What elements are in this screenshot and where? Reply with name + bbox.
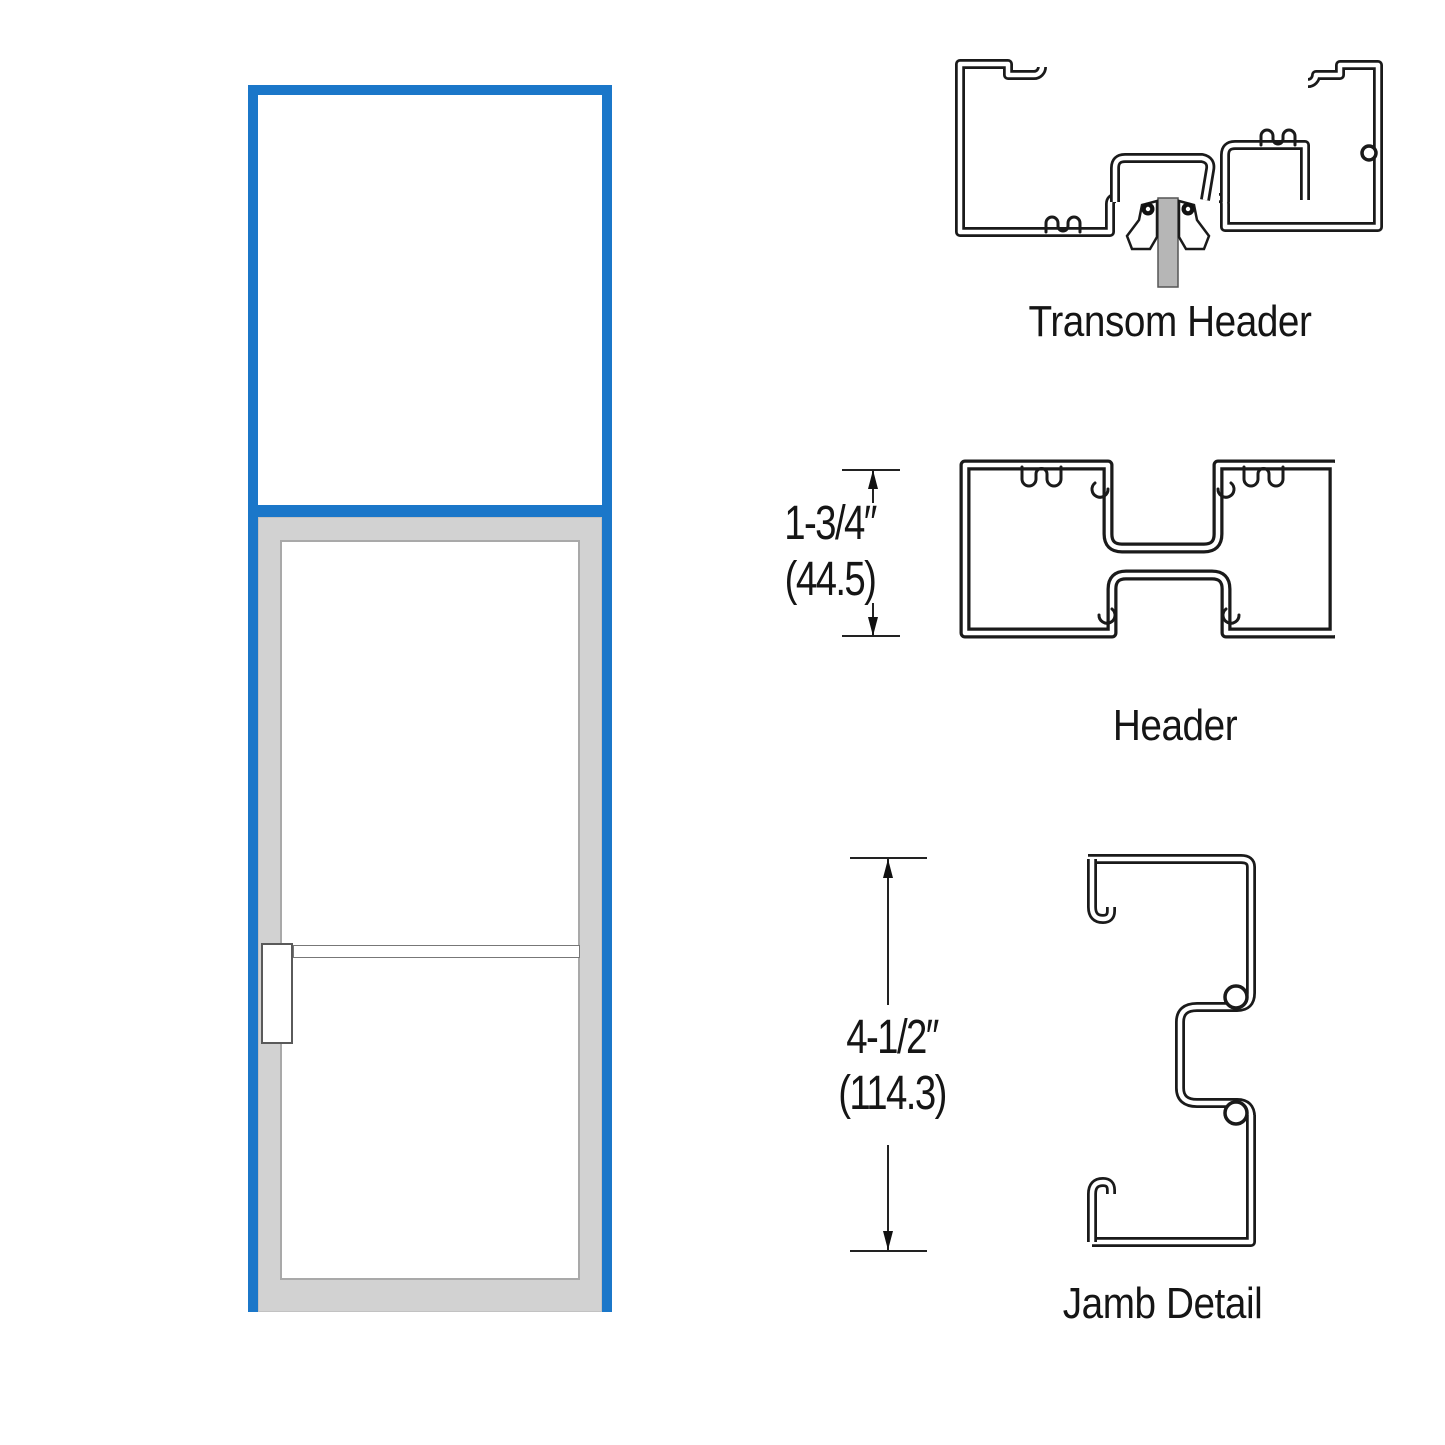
push-bar-bracket	[261, 943, 293, 1044]
dim-arrow-down	[868, 617, 878, 636]
transom-panel	[258, 95, 602, 505]
clip-ring	[1362, 146, 1376, 160]
jamb-dimension-mm: (114.3)	[828, 1066, 956, 1122]
header-label: Header	[1056, 704, 1294, 748]
dim-arrow-up	[868, 470, 878, 489]
door-glass	[280, 540, 580, 1280]
push-bar	[293, 945, 580, 958]
transom-header-label: Transom Header	[976, 300, 1363, 344]
header-dimension-mm: (44.5)	[766, 552, 894, 608]
jamb-dimension-inches: 4-1/2″	[828, 1010, 956, 1066]
clip-ring	[1225, 986, 1247, 1008]
dim-arrow-down	[883, 1231, 893, 1250]
header-dimension-inches: 1-3/4″	[766, 496, 894, 552]
clip-ring	[1225, 1102, 1247, 1124]
header-dimension: 1-3/4″ (44.5)	[766, 496, 894, 608]
glass-section	[1158, 198, 1178, 287]
transom-header-profile-drawing	[950, 52, 1390, 297]
jamb-dimension: 4-1/2″ (114.3)	[828, 1010, 956, 1122]
jamb-detail-label: Jamb Detail	[1037, 1282, 1288, 1326]
dim-arrow-up	[883, 859, 893, 878]
